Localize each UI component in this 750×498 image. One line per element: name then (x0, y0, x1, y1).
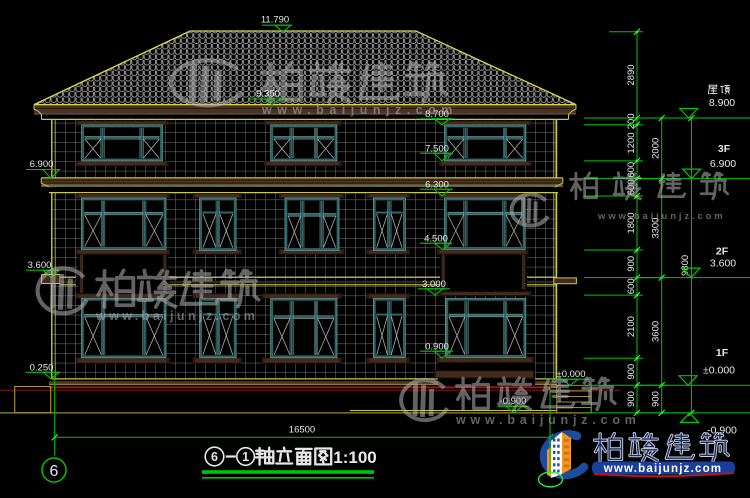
svg-text:900: 900 (626, 364, 637, 380)
svg-text:www.baijunjz.com: www.baijunjz.com (603, 463, 722, 475)
svg-text:900: 900 (626, 391, 637, 407)
svg-text:2890: 2890 (626, 64, 637, 85)
svg-text:11.790: 11.790 (261, 15, 289, 26)
svg-text:8.900: 8.900 (709, 97, 735, 109)
svg-text:www.baijunjz.com: www.baijunjz.com (455, 413, 641, 427)
svg-text:2100: 2100 (626, 316, 637, 337)
svg-text:600: 600 (626, 278, 637, 294)
svg-text:1:100: 1:100 (333, 448, 376, 467)
svg-text:9.350: 9.350 (256, 89, 280, 100)
svg-text:1200: 1200 (626, 132, 637, 153)
svg-text:6.900: 6.900 (30, 159, 54, 170)
svg-text:±0.000: ±0.000 (703, 365, 735, 377)
svg-text:3.600: 3.600 (28, 260, 52, 271)
svg-text:900: 900 (626, 256, 637, 272)
svg-text:2000: 2000 (651, 138, 662, 159)
svg-text:3F: 3F (718, 143, 731, 155)
svg-text:www.baijunjz.com: www.baijunjz.com (261, 103, 458, 117)
svg-text:6.900: 6.900 (710, 158, 736, 170)
svg-text:3.600: 3.600 (710, 258, 736, 270)
svg-text:200: 200 (626, 113, 637, 129)
svg-text:www.baijunjz.com: www.baijunjz.com (95, 309, 258, 323)
svg-text:www.baijunjz.com: www.baijunjz.com (597, 211, 726, 222)
svg-text:1F: 1F (716, 347, 729, 359)
svg-text:3600: 3600 (651, 321, 662, 342)
svg-text:6: 6 (50, 463, 59, 480)
svg-text:0.250: 0.250 (30, 362, 54, 373)
svg-text:6: 6 (211, 450, 218, 464)
svg-text:900: 900 (651, 391, 662, 407)
svg-text:2F: 2F (716, 246, 729, 258)
svg-text:16500: 16500 (289, 425, 315, 436)
svg-text:1: 1 (242, 450, 249, 464)
